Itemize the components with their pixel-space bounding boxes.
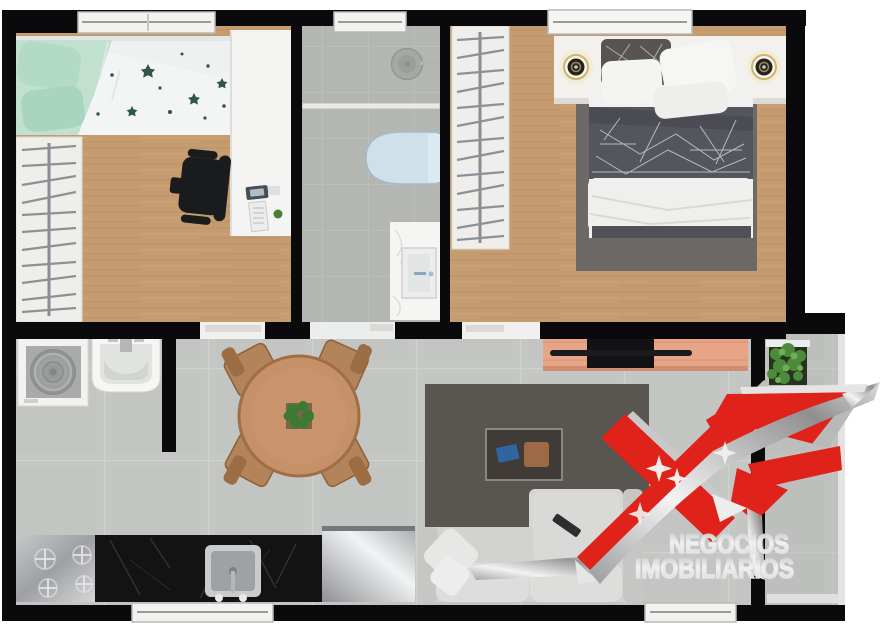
svg-text:IMOBILIARIOS: IMOBILIARIOS (635, 553, 794, 584)
